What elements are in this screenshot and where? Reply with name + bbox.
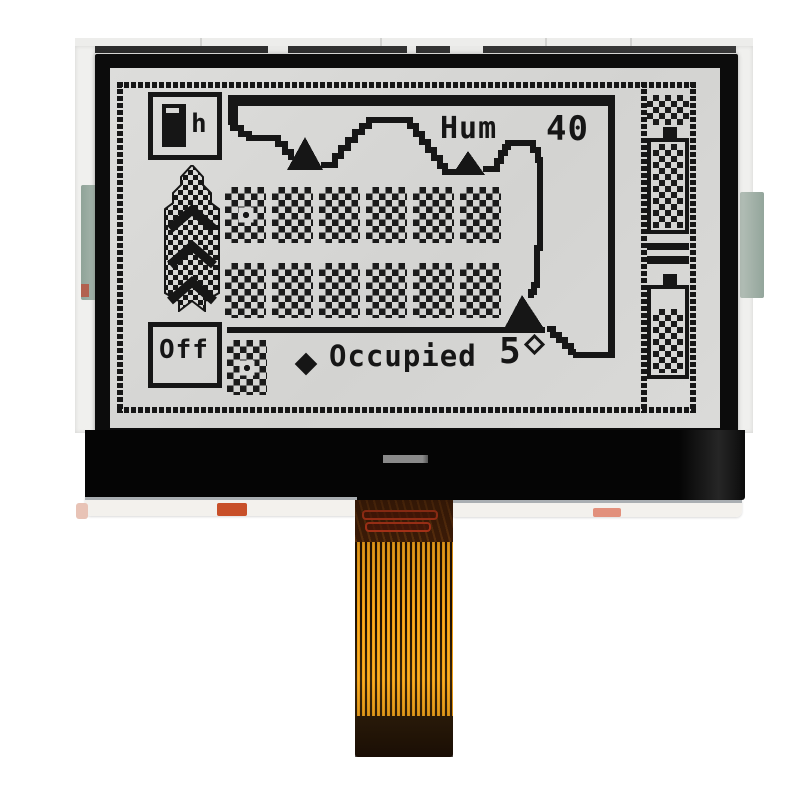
map-coastline-mid xyxy=(321,120,457,172)
flex-cable xyxy=(355,500,453,757)
map-coastline-left xyxy=(233,123,291,160)
battery-full-nub xyxy=(663,127,677,138)
solder-pad-left xyxy=(217,503,247,516)
map-marker-2 xyxy=(452,151,485,175)
status-block-eye xyxy=(240,360,255,375)
map-left-cap xyxy=(228,95,238,125)
battery-full-icon xyxy=(647,138,689,234)
map-right-border xyxy=(608,95,615,358)
pcb-corner-mark xyxy=(76,503,88,519)
region-map xyxy=(110,68,720,428)
lcd-glass-strip xyxy=(85,430,745,500)
battery-partial-fill xyxy=(653,309,683,373)
lcd-screen: h Off xyxy=(110,68,720,428)
lcd-module-photo: h Off xyxy=(0,0,800,800)
rim-notch xyxy=(407,46,416,53)
humidity-label: Hum xyxy=(440,114,497,144)
flex-cable-shading xyxy=(355,500,453,757)
rim-notch xyxy=(268,46,288,53)
map-top-bar xyxy=(228,95,615,106)
rim-seam xyxy=(380,38,382,46)
solder-pad-right xyxy=(593,508,621,517)
signal-dither-icon xyxy=(647,95,689,125)
map-bottom-border xyxy=(573,352,615,358)
equals-bar-bottom xyxy=(647,256,689,264)
map-coastline-right xyxy=(483,143,540,298)
equals-bar-top xyxy=(647,243,689,250)
humidity-value: 40 xyxy=(546,112,589,146)
rim-seam xyxy=(630,38,632,46)
green-tab-right xyxy=(740,192,764,298)
battery-partial-nub xyxy=(663,274,677,285)
rim-seam xyxy=(545,38,547,46)
status-dither-block xyxy=(227,340,267,395)
temperature-value: 5 xyxy=(499,334,522,370)
battery-full-fill xyxy=(653,144,683,228)
connector-dash xyxy=(383,455,428,463)
battery-partial-icon xyxy=(647,285,689,379)
occupied-divider-line xyxy=(227,327,545,333)
rim-notch xyxy=(450,46,483,53)
status-label: Occupied xyxy=(329,342,477,371)
map-diagonal-step xyxy=(547,329,576,352)
rim-seam xyxy=(200,38,202,46)
red-tab-mark xyxy=(81,284,89,297)
map-marker-3 xyxy=(505,295,543,327)
